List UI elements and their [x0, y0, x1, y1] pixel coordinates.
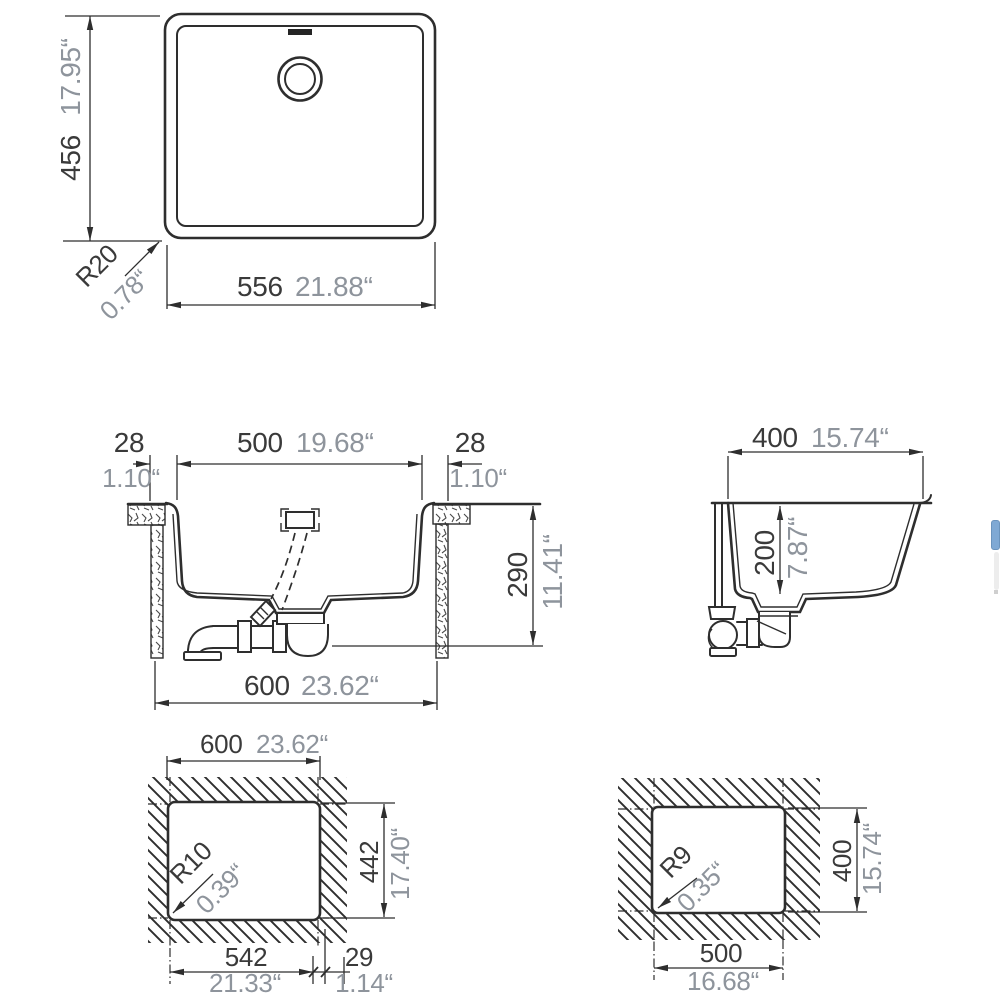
scrollbar-thumb[interactable] — [991, 520, 1000, 550]
scrollbar-track-segment — [994, 552, 999, 590]
cutout-main-view: 600 23.62“ 442 17.40“ R10 0.39“ 542 21.3… — [148, 729, 415, 998]
cutout-alt-height-in: 15.74“ — [857, 823, 887, 895]
cutout-main-height-in: 17.40“ — [385, 828, 415, 900]
trap-outlet-flange — [184, 652, 221, 660]
plan-width-in: 21.88“ — [295, 271, 373, 302]
cutout-alt-width-mm: 500 — [700, 938, 742, 968]
front-overall-width-in: 23.62“ — [301, 670, 379, 701]
cabinet-left-leg — [151, 525, 163, 658]
plan-height-in: 17.95“ — [55, 38, 86, 116]
side-depth-mm: 200 — [749, 530, 780, 576]
side-pipe-coupling — [747, 619, 759, 647]
front-left-rim-in: 1.10“ — [102, 463, 160, 493]
front-right-rim-in: 1.10“ — [449, 463, 507, 493]
side-width-mm: 400 — [752, 422, 798, 453]
drawing-canvas: 456 17.95“ 556 21.88“ R20 0.78“ — [0, 0, 1000, 1000]
pipe-coupling — [238, 621, 251, 652]
cutout-alt-height-mm: 400 — [827, 840, 857, 882]
front-right-rim-mm: 28 — [455, 427, 486, 458]
trap-bell — [287, 624, 328, 656]
cutout-main-height-mm: 442 — [354, 841, 384, 883]
front-overall-width-mm: 600 — [244, 670, 290, 701]
cutout-main-offset-in: 1.14“ — [335, 968, 393, 998]
cutout-alt-view: 400 15.74“ R9 0.35“ 500 16.68“ — [618, 778, 887, 996]
side-section-view: 400 15.74“ 200 7.87“ — [708, 422, 931, 656]
side-outlet-flange — [710, 648, 736, 656]
overflow-duct-dashed — [282, 533, 307, 610]
cutout-main-width-mm: 600 — [200, 729, 242, 759]
sink-outer-outline — [165, 14, 435, 238]
front-bowl-width-in: 19.68“ — [296, 427, 374, 458]
overflow-opening — [286, 512, 314, 528]
pipe-coupling — [273, 621, 286, 652]
plan-view: 456 17.95“ 556 21.88“ R20 0.78“ — [55, 14, 435, 326]
front-height-in: 11.41“ — [537, 534, 568, 610]
plan-height-mm: 456 — [55, 135, 86, 181]
cutout-main-lower-width-in: 21.33“ — [209, 968, 281, 998]
overflow-duct-dashed — [271, 533, 295, 599]
cutout-main-width-in: 23.62“ — [256, 729, 328, 759]
standpipe-nut — [709, 607, 735, 619]
side-trap-elbow — [709, 621, 737, 649]
front-section-view: 28 1.10“ 500 19.68“ 28 1.10“ 290 11.41“ … — [102, 427, 568, 710]
scrollbar-mark — [994, 590, 998, 594]
front-height-mm: 290 — [502, 552, 533, 598]
drain-locknut — [277, 613, 324, 624]
side-depth-in: 7.87“ — [782, 517, 813, 579]
cabinet-right-leg — [436, 524, 448, 658]
plan-width-mm: 556 — [237, 271, 283, 302]
cutout-alt-width-in: 16.68“ — [687, 966, 759, 996]
countertop-right — [433, 505, 470, 524]
sink-dimension-drawing: 456 17.95“ 556 21.88“ R20 0.78“ — [0, 0, 1000, 1000]
side-width-in: 15.74“ — [811, 422, 889, 453]
overflow-slot — [288, 29, 312, 35]
front-left-rim-mm: 28 — [114, 427, 145, 458]
countertop-left — [128, 505, 165, 525]
front-bowl-width-mm: 500 — [237, 427, 283, 458]
